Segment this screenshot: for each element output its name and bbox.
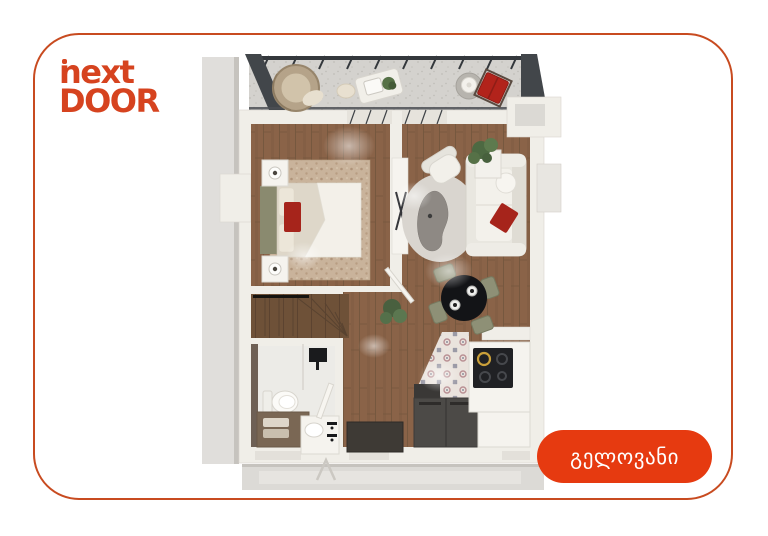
doormat-icon	[347, 422, 403, 452]
cooktop-icon	[473, 348, 513, 388]
base-slab-bottom	[242, 464, 544, 490]
page-background: next DOOR	[0, 0, 768, 536]
logo-dot-icon	[62, 59, 67, 64]
nightstand-icon	[262, 160, 288, 186]
ac-unit	[537, 164, 561, 212]
logo-text-door: DOOR	[59, 87, 159, 116]
headboard-icon	[260, 186, 277, 254]
stairs	[251, 294, 349, 338]
kitchen-counter-icon	[469, 342, 530, 412]
listing-card: next DOOR	[33, 33, 733, 500]
red-pillow-icon	[284, 202, 301, 232]
nightstand-icon	[262, 256, 288, 282]
location-badge[interactable]: გელოვანი	[537, 430, 712, 483]
appliance-icon	[414, 398, 478, 447]
pouf-icon	[337, 84, 355, 98]
stair-handrail	[253, 295, 309, 298]
location-badge-label: გელოვანი	[570, 445, 679, 469]
table-decor-icon	[428, 214, 432, 218]
brand-logo: next DOOR	[59, 58, 159, 116]
sink-icon	[301, 416, 339, 454]
toilet-icon	[263, 391, 298, 413]
floor-plan	[199, 46, 565, 492]
double-bed-icon	[277, 183, 361, 257]
neighbor-slab-left	[202, 57, 239, 464]
